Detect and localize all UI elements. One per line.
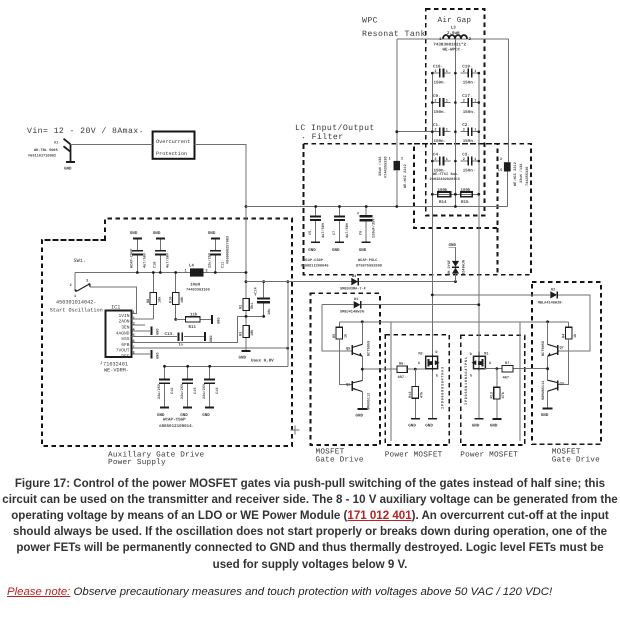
svg-text:GND: GND — [490, 424, 498, 429]
svg-text:GND: GND — [332, 248, 340, 253]
svg-text:#860080257003: #860080257003 — [226, 236, 231, 264]
svg-text:744355330: 744355330 — [525, 167, 530, 186]
svg-text:GND: GND — [217, 317, 222, 324]
svg-text:GND: GND — [308, 248, 316, 253]
svg-text:2AON: 2AON — [118, 319, 129, 325]
svg-text:4u7/50V˖: 4u7/50V˖ — [166, 251, 171, 268]
svg-text:3: 3 — [133, 322, 135, 327]
svg-text:SM 2YGF: SM 2YGF — [447, 260, 452, 275]
svg-text:WR-TBL 5005: WR-TBL 5005 — [34, 148, 58, 153]
svg-text:GND: GND — [153, 231, 161, 236]
svg-text:2: 2 — [463, 157, 465, 162]
svg-text:Gate Drive: Gate Drive — [316, 456, 364, 465]
svg-text:4R7˖: 4R7˖ — [398, 375, 407, 380]
svg-text:Auxillary Gate Drive: Auxillary Gate Drive — [108, 450, 204, 459]
svg-text:Q3˖: Q3˖ — [560, 382, 566, 387]
svg-text:X1˖: X1˖ — [54, 141, 60, 146]
svg-text:+C14: +C14 — [253, 287, 258, 296]
svg-text:1n: 1n — [179, 343, 183, 348]
svg-text:5SS: 5SS — [121, 336, 130, 342]
svg-text:5: 5 — [133, 333, 135, 338]
svg-text:Start Oscillation: Start Oscillation — [50, 307, 103, 313]
svg-text:GND: GND — [180, 413, 188, 418]
svg-text:22u/25V: 22u/25V — [202, 383, 207, 399]
svg-text:Q7˖: Q7˖ — [560, 346, 566, 351]
svg-text:47k: 47k — [501, 391, 506, 398]
svg-text:74403363100: 74403363100 — [186, 288, 210, 293]
svg-text:C11˖: C11˖ — [221, 259, 226, 268]
svg-text:10k: 10k — [158, 296, 163, 303]
svg-text:33uH /13A: 33uH /13A — [519, 163, 524, 183]
svg-text:GND: GND — [64, 167, 72, 172]
svg-text:SW1˖: SW1˖ — [74, 258, 86, 264]
svg-text:450301014042˖: 450301014042˖ — [56, 300, 96, 306]
svg-text:SMUN5112: SMUN5112 — [367, 393, 372, 410]
svg-text:R13: R13 — [490, 392, 495, 398]
svg-text:1: 1 — [474, 128, 476, 133]
svg-text:┘71032401: ┘71032401 — [99, 361, 128, 368]
svg-text:MOSFET: MOSFET — [552, 448, 581, 457]
svg-text:C5˖: C5˖ — [308, 229, 313, 235]
svg-text:22u/25V: 22u/25V — [157, 383, 162, 399]
svg-text:Q1: Q1 — [346, 383, 350, 388]
svg-text:GND: GND — [356, 414, 364, 419]
svg-text:GND: GND — [425, 423, 433, 428]
svg-text:220uF/35V˖: 220uF/35V˖ — [372, 216, 377, 238]
svg-text:C16: C16 — [215, 388, 220, 394]
svg-text:GND: GND — [157, 413, 165, 418]
svg-text:R2: R2 — [239, 305, 244, 309]
svg-text:47k: 47k — [420, 391, 425, 398]
svg-text:3EN: 3EN — [121, 325, 130, 331]
svg-text:7: 7 — [133, 345, 135, 350]
svg-text:GND: GND — [359, 248, 367, 253]
svg-text:G: G — [418, 361, 420, 366]
svg-text:GND: GND — [130, 231, 138, 236]
svg-text:C13˖: C13˖ — [165, 332, 175, 337]
svg-text:1: 1 — [474, 69, 476, 74]
svg-text:2: 2 — [434, 69, 436, 74]
svg-text:22u/25V: 22u/25V — [208, 252, 213, 268]
svg-text:SMB3U3MA-7-F: SMB3U3MA-7-F — [340, 287, 366, 292]
svg-text:2: 2 — [434, 98, 436, 103]
svg-text:4u7/50V˖: 4u7/50V˖ — [321, 221, 326, 238]
svg-text:R8: R8 — [146, 299, 151, 303]
svg-text:150n˖: 150n˖ — [463, 139, 476, 144]
svg-text:GND: GND — [209, 335, 214, 342]
svg-text:2: 2 — [70, 283, 72, 288]
svg-text:C9˖: C9˖ — [433, 94, 441, 99]
svg-text:C2˖: C2˖ — [462, 123, 470, 128]
svg-text:Power Supply: Power Supply — [108, 458, 166, 467]
svg-text:G: G — [489, 361, 491, 366]
svg-text:IPD068N10N3G4TPN1: IPD068N10N3G4TPN1 — [464, 356, 469, 405]
svg-text:2: 2 — [206, 269, 208, 274]
svg-text:2: 2 — [500, 157, 502, 162]
svg-text:2: 2 — [463, 128, 465, 133]
svg-text:200324020203C3: 200324020203C3 — [430, 177, 460, 182]
svg-text:R11: R11 — [189, 325, 197, 330]
svg-text:22u/25V: 22u/25V — [180, 383, 185, 399]
svg-text:150n˖: 150n˖ — [434, 81, 447, 86]
svg-text:WE-HCI 2212: WE-HCI 2212 — [403, 164, 408, 188]
svg-text:4u7/50V˖: 4u7/50V˖ — [143, 251, 148, 268]
svg-text:GND: GND — [408, 423, 416, 428]
svg-text:C3˖: C3˖ — [462, 152, 470, 157]
svg-text:3: 3 — [86, 279, 88, 284]
svg-text:2: 2 — [463, 98, 465, 103]
svg-text:D1: D1 — [354, 297, 358, 302]
svg-text:875875952008: 875875952008 — [356, 264, 382, 269]
svg-text:WPC: WPC — [362, 16, 378, 25]
svg-text:#744355330: #744355330 — [384, 156, 389, 178]
svg-text:C10: C10 — [153, 262, 158, 268]
svg-text:R5: R5 — [332, 334, 337, 338]
svg-text:GND: GND — [208, 231, 216, 236]
svg-text:33uH /13A: 33uH /13A — [378, 156, 383, 176]
svg-text:R10: R10 — [168, 297, 173, 303]
svg-text:#890812200046: #890812200046 — [301, 264, 329, 269]
svg-text:R12: R12 — [408, 392, 413, 398]
svg-text:4u7/50V˖: 4u7/50V˖ — [345, 221, 350, 238]
svg-text:R7˖: R7˖ — [505, 361, 511, 366]
svg-text:WCAP-CSGP: WCAP-CSGP — [163, 418, 186, 423]
svg-text:1: 1 — [446, 157, 448, 162]
svg-text:SMBJ4148WJN˖: SMBJ4148WJN˖ — [340, 309, 366, 314]
svg-text:MBLA4148WJN˖: MBLA4148WJN˖ — [538, 300, 564, 305]
svg-text:10u: 10u — [267, 309, 272, 315]
svg-text:GND: GND — [156, 328, 161, 335]
svg-text:C7˖: C7˖ — [332, 229, 337, 235]
svg-text:150n˖: 150n˖ — [434, 110, 447, 115]
svg-text:#691101710002: #691101710002 — [28, 154, 56, 159]
svg-text:WE-FTXI 3mm˖: WE-FTXI 3mm˖ — [433, 172, 459, 177]
svg-text:L3: L3 — [451, 26, 457, 31]
svg-text:R6˖: R6˖ — [399, 361, 405, 366]
svg-text:REF: REF — [121, 354, 130, 360]
svg-text:4248WJN: 4248WJN — [461, 260, 466, 275]
svg-text:150n˖: 150n˖ — [463, 168, 476, 173]
svg-text:2: 2 — [463, 69, 465, 74]
svg-text:10k: 10k — [180, 296, 185, 303]
svg-text:C19˖: C19˖ — [462, 65, 472, 70]
svg-text:WCAP-CSGP: WCAP-CSGP — [130, 249, 135, 268]
svg-text:1: 1 — [133, 310, 135, 315]
svg-text:7VOUT: 7VOUT — [116, 348, 130, 354]
svg-text:M2˖: M2˖ — [418, 352, 424, 357]
svg-text:R15: R15 — [461, 200, 469, 205]
svg-text:1: 1 — [474, 157, 476, 162]
svg-text:C17˖: C17˖ — [462, 94, 472, 99]
svg-text:WE-HCI 2212: WE-HCI 2212 — [513, 162, 518, 186]
svg-text:150n˖: 150n˖ — [463, 81, 476, 86]
svg-text:D2˖: D2˖ — [551, 287, 557, 292]
svg-text:Vin= 12 - 20V / 8Amax˖: Vin= 12 - 20V / 8Amax˖ — [27, 127, 144, 136]
svg-text:Uaux 9,8V: Uaux 9,8V — [251, 359, 274, 364]
svg-text:BCT905S: BCT905S — [541, 340, 546, 356]
svg-text:2: 2 — [434, 157, 436, 162]
svg-text:C15: C15 — [193, 388, 198, 394]
svg-text:GND: GND — [239, 356, 247, 361]
svg-text:2: 2 — [133, 316, 135, 321]
svg-text:WCAP-PSLC: WCAP-PSLC — [358, 258, 378, 263]
svg-text:10k: 10k — [250, 329, 255, 336]
svg-text:IPD068N03G4THA3˖: IPD068N03G4THA3˖ — [441, 363, 446, 409]
svg-text:Gate Drive: Gate Drive — [552, 456, 600, 465]
svg-text:C4˖: C4˖ — [433, 152, 441, 157]
svg-text:MOSFET: MOSFET — [316, 448, 345, 457]
svg-text:4R7˖: 4R7˖ — [503, 376, 512, 381]
svg-text:GND: GND — [202, 413, 210, 418]
svg-text:M1˖: M1˖ — [484, 352, 490, 357]
svg-text:5k1: 5k1 — [250, 303, 255, 309]
svg-text:Protection: Protection — [156, 151, 187, 157]
svg-text:Power MOSFET: Power MOSFET — [460, 451, 518, 460]
svg-text:6: 6 — [133, 339, 135, 344]
svg-text:WE-WPCC˖: WE-WPCC˖ — [443, 47, 463, 52]
svg-text:L4: L4 — [189, 264, 195, 269]
svg-text:1: 1 — [446, 98, 448, 103]
svg-text:1: 1 — [74, 294, 76, 299]
svg-text:GND: GND — [472, 423, 480, 428]
svg-text:WCAP-CSGP: WCAP-CSGP — [304, 258, 323, 263]
svg-text:1VIN: 1VIN — [118, 313, 129, 319]
svg-text:R3: R3 — [239, 332, 244, 336]
svg-text:Power MOSFET: Power MOSFET — [385, 451, 443, 460]
svg-text:GND: GND — [449, 243, 457, 248]
svg-text:2: 2 — [434, 128, 436, 133]
svg-text:2: 2 — [401, 157, 403, 162]
svg-text:2.0uH: 2.0uH — [447, 31, 460, 36]
svg-text:BCT905S: BCT905S — [367, 340, 372, 356]
svg-text:C1˖: C1˖ — [433, 123, 441, 128]
svg-text:Q5: Q5 — [346, 347, 350, 352]
svg-text:˖ Filter: ˖ Filter — [301, 133, 344, 142]
svg-text:WE-VDRM˖: WE-VDRM˖ — [104, 368, 129, 374]
svg-text:Overcurrent: Overcurrent — [156, 139, 190, 145]
svg-text:#865012109014˖: #865012109014˖ — [159, 424, 194, 429]
svg-text:1: 1 — [446, 128, 448, 133]
svg-text:1: 1 — [446, 69, 448, 74]
svg-text:LC Input/Output: LC Input/Output — [295, 124, 375, 133]
svg-text:1: 1 — [389, 157, 391, 162]
svg-text:150n˖: 150n˖ — [434, 139, 447, 144]
svg-text:C6˖: C6˖ — [359, 229, 364, 235]
svg-text:1: 1 — [474, 98, 476, 103]
svg-text:R14: R14 — [439, 200, 447, 205]
svg-text:C18˖: C18˖ — [433, 65, 443, 70]
svg-text:Air Gap: Air Gap — [438, 16, 472, 25]
svg-text:8: 8 — [133, 351, 135, 356]
svg-text:1: 1 — [185, 269, 187, 274]
svg-text:GND: GND — [541, 413, 549, 418]
svg-text:10uH: 10uH — [190, 283, 201, 288]
svg-text:L5: L5 — [498, 168, 502, 173]
svg-text:6FB: 6FB — [121, 342, 130, 348]
svg-text:98MUN5112: 98MUN5112 — [541, 381, 546, 400]
svg-text:GND: GND — [156, 352, 161, 359]
svg-text:4AGND: 4AGND — [116, 330, 130, 336]
svg-text:Resonat Tank: Resonat Tank — [362, 30, 426, 39]
svg-text:150n˖: 150n˖ — [463, 110, 476, 115]
svg-text:C12: C12 — [170, 388, 175, 394]
